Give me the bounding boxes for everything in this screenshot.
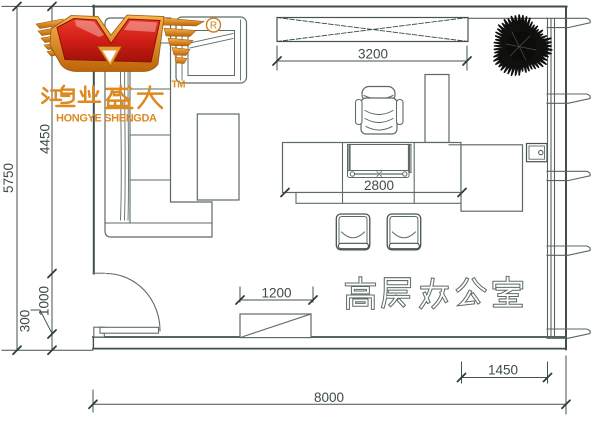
svg-text:R: R (210, 21, 217, 32)
svg-text:1450: 1450 (488, 363, 518, 378)
svg-text:5750: 5750 (1, 163, 16, 193)
svg-text:300: 300 (18, 310, 33, 333)
svg-text:HONGYE SHENGDA: HONGYE SHENGDA (56, 113, 157, 125)
svg-text:1000: 1000 (37, 286, 52, 316)
svg-text:8000: 8000 (314, 390, 344, 405)
svg-text:1200: 1200 (261, 286, 291, 301)
svg-text:TM: TM (172, 80, 186, 91)
svg-text:4450: 4450 (38, 124, 53, 154)
svg-text:2800: 2800 (364, 178, 394, 193)
svg-text:3200: 3200 (358, 47, 388, 62)
